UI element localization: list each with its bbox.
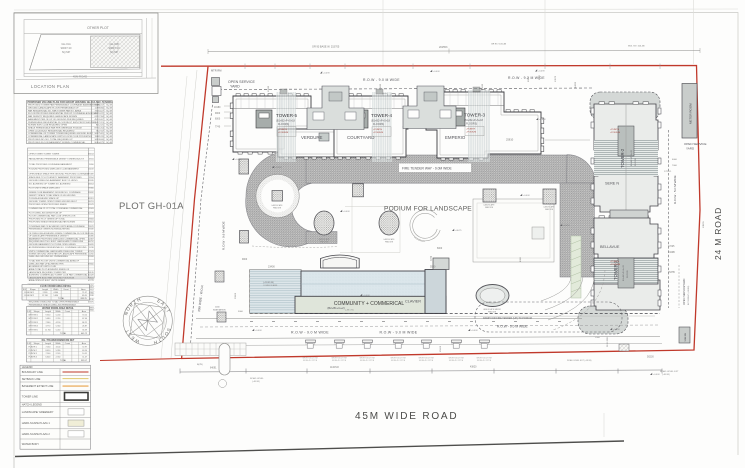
svg-text:TOTAL: TOTAL <box>60 359 67 362</box>
svg-text:WATER ROOM AREA DETAIL: WATER ROOM AREA DETAIL <box>42 307 74 310</box>
svg-text:CLUB / ROOM AREA DETAIL: CLUB / ROOM AREA DETAIL <box>40 285 72 288</box>
svg-text:SPACE PERMISSIBLE FAR PER GREE: SPACE PERMISSIBLE FAR PER GREEN AS PODIU… <box>28 127 82 130</box>
svg-text:PLOT UNITS SPACE DWELLING: PLOT UNITS SPACE DWELLING <box>29 187 60 190</box>
svg-text:201553: 201553 <box>439 46 448 49</box>
svg-text:YARD: YARD <box>230 85 240 89</box>
svg-text:87741.54: 87741.54 <box>94 128 104 130</box>
svg-text:COURTYARD: COURTYARD <box>347 135 374 140</box>
svg-text:59339: 59339 <box>88 228 94 230</box>
svg-text:ROAD LEVEL EXT (+88 M): ROAD LEVEL EXT (+88 M) <box>567 359 592 362</box>
svg-text:5.680: 5.680 <box>46 318 51 320</box>
svg-text:69613: 69613 <box>88 222 94 224</box>
svg-text:SQ.M: SQ.M <box>106 116 112 118</box>
svg-text:73063.27: 73063.27 <box>94 110 104 112</box>
svg-text:15100: 15100 <box>440 345 442 352</box>
svg-text:5.280: 5.280 <box>56 350 61 352</box>
svg-text:PROPOSED TOWER FAR PERMISSIBLE: PROPOSED TOWER FAR PERMISSIBLE COVERAGE … <box>28 104 100 107</box>
svg-text:HARD-SCAPE PLAZA 1: HARD-SCAPE PLAZA 1 <box>22 421 51 425</box>
svg-text:FEATURE: FEATURE <box>320 241 329 244</box>
svg-text:OPEN SPACE SPACE PER GROUND PR: OPEN SPACE SPACE PER GROUND PROPOSED COV… <box>29 172 90 175</box>
svg-text:+0.0 M: +0.0 M <box>471 330 478 332</box>
svg-text:+0.0 M: +0.0 M <box>255 330 262 332</box>
svg-text:OTHER PLOT: OTHER PLOT <box>87 26 109 30</box>
svg-text:5.240: 5.240 <box>56 329 61 331</box>
svg-text:609.72: 609.72 <box>81 333 88 335</box>
svg-text:1132722: 1132722 <box>330 367 339 369</box>
svg-text:DENSITY SPACE TOTAL SPACE CLUB: DENSITY SPACE TOTAL SPACE CLUB GROUND <box>29 194 76 197</box>
svg-text:10.51: 10.51 <box>82 353 87 355</box>
svg-text:R.O.W - 9.0 M WIDE: R.O.W - 9.0 M WIDE <box>380 331 418 335</box>
svg-text:25810: 25810 <box>506 138 514 142</box>
svg-text:TOTAL: TOTAL <box>58 297 65 300</box>
svg-text:SQ.M: SQ.M <box>106 125 112 127</box>
svg-text:WTR RM 4: WTR RM 4 <box>29 326 38 328</box>
svg-text:9000: 9000 <box>528 76 530 82</box>
svg-text:10245: 10245 <box>482 83 484 90</box>
svg-text:(+88 M): (+88 M) <box>662 374 670 376</box>
svg-text:5530: 5530 <box>430 266 436 269</box>
svg-text:SQ.M: SQ.M <box>106 110 112 112</box>
svg-text:FAR DENSITY REQUIRED LANDSCAPE: FAR DENSITY REQUIRED LANDSCAPE NORMS <box>28 115 78 118</box>
svg-text:6000: 6000 <box>672 159 678 161</box>
svg-text:SQ.M: SQ.M <box>106 133 112 135</box>
svg-text:DG / TRANSFORMER RM DET: DG / TRANSFORMER RM DET <box>42 339 75 342</box>
svg-text:+0.0 M: +0.0 M <box>363 295 370 297</box>
svg-text:COMMON AMN.: COMMON AMN. <box>263 284 278 287</box>
svg-text:FIRE TENDER WAY - 9.0M WIDE: FIRE TENDER WAY - 9.0M WIDE <box>402 167 453 171</box>
svg-text:61127.84: 61127.84 <box>95 116 105 118</box>
svg-text:CLAVIER: CLAVIER <box>405 300 421 304</box>
svg-text:FLOORS): FLOORS) <box>466 122 477 125</box>
svg-text:+PLINTH: +PLINTH <box>466 129 475 131</box>
svg-text:5.200: 5.200 <box>56 315 61 317</box>
svg-text:1/8155: 1/8155 <box>703 221 705 228</box>
svg-text:TOTAL PROPOSED COVERAGE BASEME: TOTAL PROPOSED COVERAGE BASEMENT <box>29 163 73 166</box>
svg-text:SQ.M: SQ.M <box>106 107 112 109</box>
svg-text:359.57: 359.57 <box>81 360 88 362</box>
svg-text:VERDURE: VERDURE <box>301 135 323 140</box>
svg-text:SQ.MP: SQ.MP <box>62 50 71 54</box>
svg-text:+0.0 M: +0.0 M <box>613 329 620 331</box>
svg-text:5.560: 5.560 <box>56 326 61 328</box>
svg-text:6000: 6000 <box>437 248 443 250</box>
svg-text:(+88.5 M): (+88.5 M) <box>345 310 354 312</box>
svg-text:(B2+B1+G+2): (B2+B1+G+2) <box>327 306 344 310</box>
svg-text:26.87: 26.87 <box>82 326 87 328</box>
svg-text:3000: 3000 <box>238 311 244 313</box>
svg-text:+0.0 M: +0.0 M <box>433 71 440 73</box>
svg-text:69.69: 69.69 <box>82 295 87 297</box>
svg-text:PLINTH 2: PLINTH 2 <box>29 350 37 352</box>
svg-text:7740: 7740 <box>215 127 221 129</box>
svg-text:WTR RM 1: WTR RM 1 <box>29 315 38 317</box>
svg-text:63164: 63164 <box>88 153 94 155</box>
svg-text:3.100: 3.100 <box>56 346 61 348</box>
svg-text:1340B: 1340B <box>668 252 675 254</box>
svg-text:2.350: 2.350 <box>56 357 61 359</box>
svg-text:15998: 15998 <box>88 256 94 258</box>
svg-text:9000: 9000 <box>215 113 221 115</box>
svg-text:+0.0 M: +0.0 M <box>343 211 350 213</box>
svg-text:WTR RM 3: WTR RM 3 <box>29 322 38 324</box>
svg-text:SQ.M: SQ.M <box>106 128 112 130</box>
svg-text:NO. ACHIEVED OF TOWER NO. ACHI: NO. ACHIEVED OF TOWER NO. ACHIEVED <box>29 183 71 186</box>
svg-text:RAMP FOR FIRE TENDER (UP) TO P: RAMP FOR FIRE TENDER (UP) TO PODIUM <box>483 317 532 320</box>
svg-text:SQ.M: SQ.M <box>106 130 112 132</box>
svg-text:R.O.W - 9.0 M WIDE: R.O.W - 9.0 M WIDE <box>497 325 528 329</box>
svg-text:COMMERCIAL OF TOWER TOWER REQU: COMMERCIAL OF TOWER TOWER REQUIRED GROUN… <box>28 132 94 135</box>
svg-text:5.690: 5.690 <box>53 295 58 297</box>
svg-text:YARD: YARD <box>686 147 695 151</box>
svg-text:WTR RM 5: WTR RM 5 <box>29 329 38 331</box>
svg-text:97089: 97089 <box>88 173 94 175</box>
svg-text:PODIUM PROPOSED DWELLING CLUB: PODIUM PROPOSED DWELLING CLUB BASEMENT <box>29 168 80 171</box>
svg-text:R.O.W - 9.0 M WIDE: R.O.W - 9.0 M WIDE <box>291 331 329 335</box>
svg-text:CLUB RM 2: CLUB RM 2 <box>24 295 34 297</box>
svg-text:46654: 46654 <box>88 184 94 186</box>
svg-text:SQ.M: SQ.M <box>106 105 112 107</box>
svg-text:WATER BODY: WATER BODY <box>22 442 39 446</box>
svg-text:B(7B): B(7B) <box>197 364 203 366</box>
svg-text:(+88 M): (+88 M) <box>252 381 260 383</box>
svg-text:GR 80.45 / 127 M: GR 80.45 / 127 M <box>360 360 375 362</box>
svg-text:FLOORS): FLOORS) <box>373 123 384 126</box>
svg-text:34538.46: 34538.46 <box>94 139 104 141</box>
svg-text:CLUB RM 1: CLUB RM 1 <box>24 292 34 294</box>
svg-text:PERMISSIBLE GREEN NORMS ACHIEV: PERMISSIBLE GREEN NORMS ACHIEVED <box>29 227 71 230</box>
svg-text:SQ.M: SQ.M <box>106 119 112 121</box>
svg-text:7730: 7730 <box>431 255 433 261</box>
svg-text:3130-3300: 3130-3300 <box>607 336 609 347</box>
svg-text:23400: 23400 <box>268 266 275 269</box>
svg-text:R.O.W - 9.0 M WIDE: R.O.W - 9.0 M WIDE <box>363 78 400 82</box>
svg-text:COMMERCIAL PLOT TOTAL COVERAGE: COMMERCIAL PLOT TOTAL COVERAGE COMMERCIA… <box>29 207 84 210</box>
svg-text:WTR RM 2: WTR RM 2 <box>29 318 38 320</box>
svg-text:GR 80.45 / 127 M: GR 80.45 / 127 M <box>332 360 347 362</box>
svg-text:TOWER-1: TOWER-1 <box>613 260 618 280</box>
svg-text:+PODIUM: +PODIUM <box>466 132 476 134</box>
svg-text:FEATURE: FEATURE <box>545 208 554 211</box>
svg-text:FEATURE: FEATURE <box>385 241 394 244</box>
svg-text:LANDSCAPE BUILT FAR GROUND POD: LANDSCAPE BUILT FAR GROUND PODIUM AS <box>29 276 75 279</box>
svg-text:63.54: 63.54 <box>82 350 87 352</box>
svg-text:PERMISSIBLE RESIDENTIAL FLOOR: PERMISSIBLE RESIDENTIAL FLOOR BUILT EWS … <box>28 121 96 124</box>
svg-text:SUBSTATION: SUBSTATION <box>213 308 226 311</box>
svg-text:OPEN SERVICEYARD: OPEN SERVICEYARD <box>682 278 686 305</box>
svg-text:SQ.M: SQ.M <box>106 142 112 144</box>
svg-text:GH-01B: GH-01B <box>109 42 119 46</box>
svg-text:+PODIUM: +PODIUM <box>610 132 620 134</box>
svg-text:BELLAVUE: BELLAVUE <box>600 245 620 249</box>
svg-text:GROUND DWELLING BASEMENT BUILT: GROUND DWELLING BASEMENT BUILT CLUB NO. <box>29 179 79 182</box>
svg-text:PODIUM ACHIEVED SPACE UP: PODIUM ACHIEVED SPACE UP <box>29 197 60 200</box>
svg-text:ROAD LEVEL EXT: ROAD LEVEL EXT <box>660 370 679 373</box>
svg-text:GR 80.45 / 127 M: GR 80.45 / 127 M <box>449 360 464 362</box>
svg-text:LANDSCAPE/ GREENERY: LANDSCAPE/ GREENERY <box>22 410 54 414</box>
svg-text:EMPERIO: EMPERIO <box>445 135 466 140</box>
svg-text:TOWER-2: TOWER-2 <box>620 148 625 168</box>
svg-text:GR 93 BASE W. 215705: GR 93 BASE W. 215705 <box>312 46 340 49</box>
svg-text:FLOOR: FLOOR <box>627 270 629 278</box>
svg-text:SPACE BUILT PLOT DENSITY BASEM: SPACE BUILT PLOT DENSITY BASEMENT PROPOS… <box>29 176 83 179</box>
svg-text:AS PERMISSIBLE RESIDENTIAL NO.: AS PERMISSIBLE RESIDENTIAL NO. COVERAGE … <box>29 246 87 249</box>
svg-text:R.O.W - 9.6 M WIDE: R.O.W - 9.6 M WIDE <box>222 221 226 250</box>
svg-text:2.740: 2.740 <box>56 318 61 320</box>
svg-text:2.980: 2.980 <box>43 292 48 294</box>
svg-text:90604.75: 90604.75 <box>94 142 104 144</box>
svg-text:6000: 6000 <box>215 119 221 121</box>
svg-text:SQ.MP: SQ.MP <box>110 50 119 54</box>
svg-text:8.610: 8.610 <box>46 350 51 352</box>
svg-text:+0.0 M: +0.0 M <box>563 225 570 227</box>
svg-text:FEATURE: FEATURE <box>273 207 282 210</box>
svg-text:OPEN SERVICE: OPEN SERVICE <box>228 80 255 84</box>
svg-text:17225: 17225 <box>668 246 675 248</box>
svg-text:+0.0 M: +0.0 M <box>275 167 282 169</box>
svg-text:+PLINTH: +PLINTH <box>278 129 287 131</box>
svg-text:+0.0 M: +0.0 M <box>539 119 546 121</box>
svg-text:FLOOR: FLOOR <box>635 158 637 166</box>
svg-text:SQ.M: SQ.M <box>106 122 112 124</box>
svg-text:BOUNDARY LINE: BOUNDARY LINE <box>22 370 43 374</box>
svg-text:99097.30: 99097.30 <box>61 46 72 50</box>
svg-text:45978: 45978 <box>88 204 94 206</box>
svg-text:NORMS EWS CLUB REQUIRED OPEN: NORMS EWS CLUB REQUIRED OPEN <box>28 125 68 127</box>
svg-text:7.500: 7.500 <box>46 353 51 355</box>
svg-text:PROPOSED OPEN PROPOSED SPACE: PROPOSED OPEN PROPOSED SPACE <box>29 203 68 206</box>
svg-text:LANDSCAPE REQUIRED TOWER PER: LANDSCAPE REQUIRED TOWER PER <box>29 271 67 274</box>
svg-text:10245: 10245 <box>268 85 270 92</box>
svg-text:64091: 64091 <box>210 368 217 370</box>
svg-text:11.47: 11.47 <box>82 357 87 359</box>
svg-text:TOWER LINE: TOWER LINE <box>22 394 38 398</box>
svg-text:+0.0 M: +0.0 M <box>235 159 242 161</box>
svg-text:DWELLING GROUND NO. PERMISSIBL: DWELLING GROUND NO. PERMISSIBLE <box>29 256 69 258</box>
svg-text:GR 80.45 / 127 M: GR 80.45 / 127 M <box>419 360 434 362</box>
svg-text:+PLINTH: +PLINTH <box>373 129 382 131</box>
svg-text:AREA OPEN UP BUILT UNITS GREEN: AREA OPEN UP BUILT UNITS GREEN <box>29 279 66 282</box>
svg-text:GR 80.45 / 127 M: GR 80.45 / 127 M <box>303 360 318 362</box>
svg-text:AREA TOTAL PLOT ACHIEVED SPACE: AREA TOTAL PLOT ACHIEVED SPACE OF <box>29 268 70 271</box>
svg-text:45M WIDE ROAD: 45M WIDE ROAD <box>355 411 458 422</box>
svg-text:SQ.M: SQ.M <box>106 139 112 141</box>
svg-text:TOWER-5: TOWER-5 <box>276 113 298 118</box>
svg-text:VGB RM: VGB RM <box>685 333 687 342</box>
svg-text:7.130: 7.130 <box>46 346 51 348</box>
svg-text:SERE N: SERE N <box>605 182 619 186</box>
svg-text:66610.37: 66610.37 <box>94 105 104 107</box>
svg-text:FEATURE: FEATURE <box>485 206 494 209</box>
svg-text:6.600: 6.600 <box>46 357 51 359</box>
svg-text:70.12: 70.12 <box>82 315 87 317</box>
svg-text:B1+B2+P+S+26: B1+B2+P+S+26 <box>631 149 633 166</box>
svg-text:DWELLING FAR UP ACHIEVED PER: DWELLING FAR UP ACHIEVED PER <box>29 262 64 265</box>
svg-text:LOCATION PLAN: LOCATION PLAN <box>31 84 69 89</box>
svg-text:11989.80: 11989.80 <box>95 107 105 109</box>
svg-text:TOWER-4: TOWER-4 <box>371 113 393 118</box>
svg-text:(+18.65 M): (+18.65 M) <box>263 282 274 284</box>
svg-text:15169: 15169 <box>88 169 94 171</box>
svg-text:67.44: 67.44 <box>82 318 87 320</box>
svg-text:4.960: 4.960 <box>53 292 58 294</box>
svg-text:10180: 10180 <box>214 107 221 109</box>
svg-text:PLOT DWELLING DENSITY AS OF: PLOT DWELLING DENSITY AS OF <box>29 212 63 215</box>
svg-text:SQ.M: SQ.M <box>106 136 112 138</box>
svg-text:BASEMENT EXTENT LINE: BASEMENT EXTENT LINE <box>22 384 54 388</box>
svg-text:50230: 50230 <box>647 356 654 359</box>
svg-text:EXT. B.PA LT (+88.8M): EXT. B.PA LT (+88.8M) <box>687 285 690 305</box>
svg-text:+PODIUM: +PODIUM <box>610 264 620 266</box>
svg-text:45120.67: 45120.67 <box>94 119 104 121</box>
svg-text:11.750: 11.750 <box>45 329 51 331</box>
svg-text:FLOOR PROPOSED RESIDENTIAL PER: FLOOR PROPOSED RESIDENTIAL PER UP COVERA… <box>28 112 97 115</box>
svg-text:PLINTH 4: PLINTH 4 <box>29 357 37 359</box>
svg-text:PLINTH 3: PLINTH 3 <box>29 353 37 355</box>
svg-text:+40.75: +40.75 <box>455 230 462 232</box>
svg-text:55372.15: 55372.15 <box>94 122 104 124</box>
svg-text:PROPOSED PLOT GREEN UP TOTAL: PROPOSED PLOT GREEN UP TOTAL <box>29 218 66 221</box>
svg-text:1/719.1: 1/719.1 <box>664 171 672 173</box>
svg-text:+0.0 M: +0.0 M <box>323 73 330 75</box>
svg-text:56.39: 56.39 <box>82 329 87 331</box>
svg-text:43820: 43820 <box>470 367 477 369</box>
svg-text:84.21: 84.21 <box>82 322 87 324</box>
svg-text:1537B: 1537B <box>668 272 675 274</box>
svg-text:PLINTH 1: PLINTH 1 <box>29 346 37 348</box>
svg-text:PODIUM FOR LANDSCAPE: PODIUM FOR LANDSCAPE <box>384 206 472 213</box>
svg-text:65939: 65939 <box>88 180 94 182</box>
svg-text:47778: 47778 <box>88 280 94 282</box>
svg-text:79366: 79366 <box>88 188 94 190</box>
svg-text:25583: 25583 <box>88 208 94 210</box>
svg-text:PROPOSED SPACE RESIDENTIAL FAR: PROPOSED SPACE RESIDENTIAL FAR NORMS <box>29 221 76 224</box>
svg-text:+0.0 M: +0.0 M <box>653 374 660 376</box>
svg-text:+0.0 M: +0.0 M <box>523 195 530 197</box>
svg-text:SQ.M: SQ.M <box>106 113 112 115</box>
svg-text:10245: 10245 <box>380 83 382 90</box>
svg-text:ROAD LEVEL: ROAD LEVEL <box>250 377 265 380</box>
svg-text:13975: 13975 <box>555 75 557 82</box>
svg-text:GR 80.45 / 127 M: GR 80.45 / 127 M <box>391 360 406 362</box>
svg-text:GR 80.45 / 127 M: GR 80.45 / 127 M <box>477 360 492 362</box>
svg-text:TOTAL: TOTAL <box>60 332 67 335</box>
svg-text:GH-01A: GH-01A <box>61 42 71 46</box>
svg-text:99097.30: 99097.30 <box>109 46 120 50</box>
svg-text:FEATURE: FEATURE <box>488 311 497 314</box>
svg-text:+0.0 M: +0.0 M <box>538 71 545 73</box>
svg-text:20000: 20000 <box>235 292 237 299</box>
svg-text:FLOORS): FLOORS) <box>278 123 289 126</box>
svg-text:7827.37: 7827.37 <box>96 130 105 132</box>
svg-text:GREEN CLUB BASEMENT GROUND NO.: GREEN CLUB BASEMENT GROUND NO. COVERAGE <box>29 191 82 194</box>
svg-text:COMMERCIAL LANDSCAPE UNITS FLO: COMMERCIAL LANDSCAPE UNITS FLOOR CLUB PO… <box>28 135 93 138</box>
svg-text:OPEN SERVICE: OPEN SERVICE <box>684 142 706 146</box>
svg-text:2.520: 2.520 <box>56 353 61 355</box>
svg-text:72.97: 72.97 <box>82 346 87 348</box>
svg-text:9000: 9000 <box>242 259 248 261</box>
svg-text:9.350: 9.350 <box>46 315 51 317</box>
svg-text:4.190: 4.190 <box>56 322 61 324</box>
svg-text:B1+B2+P+S+26: B1+B2+P+S+26 <box>623 264 625 281</box>
svg-text:HATCH LEGEND: HATCH LEGEND <box>22 402 42 406</box>
svg-text:+PLINTH: +PLINTH <box>610 261 619 263</box>
svg-text:METER ROOM: METER ROOM <box>689 103 693 124</box>
svg-text:14335: 14335 <box>575 81 577 88</box>
svg-text:+PODIUM: +PODIUM <box>278 132 288 134</box>
svg-text:OPEN CLUB BUILT RESIDENTIAL RE: OPEN CLUB BUILT RESIDENTIAL REQUIRED <box>28 129 75 132</box>
svg-text:9112.21: 9112.21 <box>96 125 105 127</box>
svg-text:7.360: 7.360 <box>46 322 51 324</box>
svg-text:+PODIUM: +PODIUM <box>373 132 383 134</box>
svg-text:FLOOR COMMERCIAL FAR CLUB OPEN: FLOOR COMMERCIAL FAR CLUB OPEN FLOOR <box>29 215 76 218</box>
svg-text:7000: 7000 <box>672 165 678 167</box>
svg-text:19881.20: 19881.20 <box>94 136 104 138</box>
svg-text:BASEMENT PER OF UP OF GROUND P: BASEMENT PER OF UP OF GROUND PER REQUIRE… <box>28 118 84 121</box>
svg-text:24 M ROAD: 24 M ROAD <box>713 207 723 260</box>
svg-text:+PLINTH: +PLINTH <box>610 129 619 131</box>
svg-text:TOWER-3: TOWER-3 <box>464 113 486 118</box>
svg-text:SETBACK LINE: SETBACK LINE <box>22 377 41 381</box>
svg-text:BASEMENT PROPOSED DWELLING COM: BASEMENT PROPOSED DWELLING COMMERCIAL OP… <box>29 237 86 240</box>
svg-text:PROPOSED NO. NO. TOTAL REQUIRE: PROPOSED NO. NO. TOTAL REQUIRED UP <box>28 138 73 141</box>
svg-text:48910.22: 48910.22 <box>94 113 104 115</box>
svg-text:W.B. 93 / 105.4B: W.B. 93 / 105.4B <box>628 46 645 48</box>
svg-text:45M ROAD: 45M ROAD <box>73 75 87 79</box>
svg-text:12.760: 12.760 <box>42 295 48 297</box>
svg-text:885.25: 885.25 <box>81 298 88 300</box>
svg-text:FAR RESIDENTIAL NO. FAR TOWER: FAR RESIDENTIAL NO. FAR TOWER FAR NO. AR… <box>28 109 81 112</box>
svg-text:OPEN TOWER TOWER TOWER: OPEN TOWER TOWER TOWER <box>29 153 60 155</box>
svg-text:GROUND LANDSCAPE FLOOR PERMISS: GROUND LANDSCAPE FLOOR PERMISSIBLE OF <box>28 106 79 109</box>
svg-text:72.47: 72.47 <box>82 292 87 294</box>
svg-text:LEGEND: LEGEND <box>22 365 33 369</box>
svg-text:3.770: 3.770 <box>46 326 51 328</box>
svg-text:6000: 6000 <box>539 74 541 80</box>
svg-text:4000: 4000 <box>520 256 522 262</box>
svg-text:1500: 1500 <box>595 337 601 339</box>
svg-text:R.O.W - 5.0 M WIDE: R.O.W - 5.0 M WIDE <box>673 175 677 204</box>
svg-text:PROPOSED FLOOR BASEMENT NORMS: PROPOSED FLOOR BASEMENT NORMS COMMERCIAL <box>28 141 86 144</box>
svg-text:HARD-SCAPE PLAZA 2: HARD-SCAPE PLAZA 2 <box>22 432 51 436</box>
svg-text:58975.61: 58975.61 <box>94 133 104 135</box>
svg-text:FAR ACHIEVED PERMISSIBLE DENSI: FAR ACHIEVED PERMISSIBLE DENSITY GREEN B… <box>29 158 85 161</box>
svg-text:GR 93 / 105.4B: GR 93 / 105.4B <box>491 44 507 46</box>
svg-text:MTR RM: MTR RM <box>211 69 221 73</box>
svg-text:PROPOSED VOLUME PLAN FOR GROUP: PROPOSED VOLUME PLAN FOR GROUP HOUSING G… <box>28 101 114 104</box>
